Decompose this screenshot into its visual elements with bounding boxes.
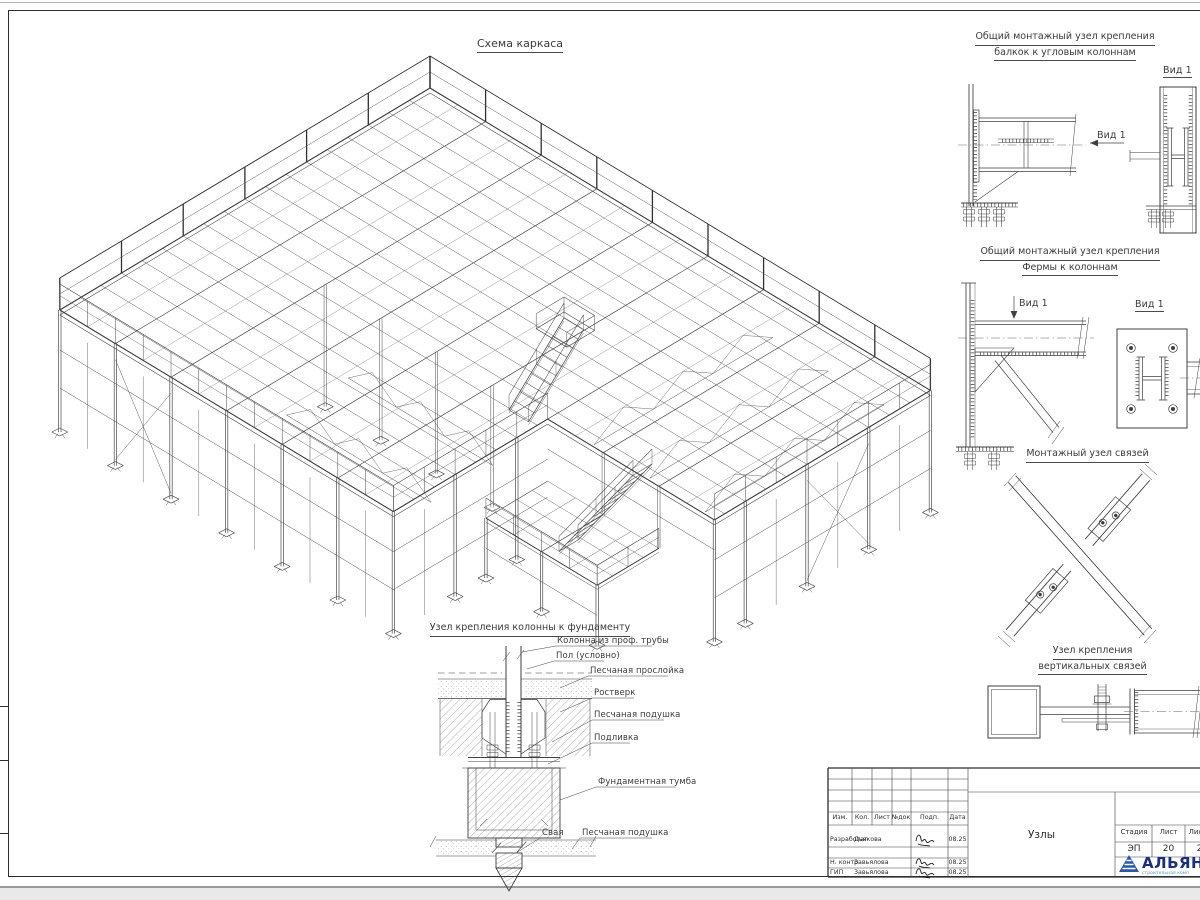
tb-sheets-value: 2 bbox=[1190, 844, 1200, 854]
detail3-title: Монтажный узел связей bbox=[975, 447, 1200, 463]
tb-role-2: ГИП bbox=[830, 869, 843, 876]
detail-vertical-braces bbox=[988, 684, 1200, 738]
detail1-view-arrow-label: Вид 1 bbox=[1097, 130, 1126, 141]
tb-doc-title: Узлы bbox=[968, 829, 1115, 841]
label-column: Колонна из проф. трубы bbox=[557, 636, 669, 646]
tb-sheet-value: 20 bbox=[1153, 844, 1184, 854]
label-sand-cushion: Песчаная подушка bbox=[594, 710, 681, 720]
detail1-title: Общий монтажный узел креплениябалкок к у… bbox=[950, 30, 1180, 61]
label-pile: Свая bbox=[542, 828, 564, 838]
label-grout: Подливка bbox=[594, 733, 639, 743]
tb-header-list: Лист bbox=[873, 814, 891, 821]
tb-date-0: 08.25 bbox=[948, 836, 967, 843]
tb-header-data: Дата bbox=[948, 814, 967, 821]
alliance-logo-subtext: строительная комп bbox=[1142, 871, 1189, 876]
tb-name-2: Завьялова bbox=[854, 869, 889, 876]
detail2-view-arrow-label: Вид 1 bbox=[1019, 298, 1048, 309]
label-pedestal: Фундаментная тумба bbox=[598, 777, 696, 787]
label-sand-cushion2: Песчаная подушка bbox=[582, 828, 669, 838]
signature bbox=[916, 835, 934, 846]
tb-date-2: 08.25 bbox=[948, 869, 967, 876]
detail2-title: Общий монтажный узел крепленияФермы к ко… bbox=[945, 245, 1195, 276]
tb-date-1: 08.25 bbox=[948, 859, 967, 866]
foundation-title: Узел крепления колонны к фундаменту bbox=[415, 621, 645, 637]
detail1-view-label: Вид 1 bbox=[1163, 65, 1192, 78]
alliance-logo-icon bbox=[1119, 855, 1139, 873]
detail-beams-corner-columns bbox=[958, 84, 1196, 233]
tb-header-kol: Кол. bbox=[853, 814, 871, 821]
tb-stage-value: ЭП bbox=[1116, 844, 1152, 854]
main-title: Схема каркаса bbox=[430, 37, 610, 53]
drawing-sheet: { "main_title": "Схема каркаса", "d1": {… bbox=[0, 0, 1200, 900]
signature bbox=[916, 859, 934, 868]
label-grillage: Ростверк bbox=[594, 688, 636, 698]
tb-stage-header: Стадия bbox=[1116, 828, 1152, 836]
tb-sheets-header: Лис bbox=[1186, 828, 1200, 836]
tb-name-1: Завьялова bbox=[854, 859, 889, 866]
tb-sheet-header: Лист bbox=[1153, 828, 1184, 836]
tb-header-izm: Изм. bbox=[829, 814, 851, 821]
detail-braces-node bbox=[998, 464, 1157, 647]
frame-scheme-isometric bbox=[52, 56, 939, 651]
tb-name-0: Дьякова bbox=[854, 836, 882, 843]
label-sand-layer: Песчаная прослойка bbox=[590, 666, 684, 676]
label-floor: Пол (условно) bbox=[556, 651, 620, 661]
detail-foundation bbox=[430, 646, 676, 891]
tb-header-podp: Подп. bbox=[912, 814, 947, 821]
detail2-view-label: Вид 1 bbox=[1135, 299, 1164, 312]
alliance-logo-text: АЛЬЯН bbox=[1142, 854, 1200, 872]
detail4-title: Узел креплениявертикальных связей bbox=[985, 644, 1200, 675]
tb-header-ndok: №док bbox=[891, 814, 911, 821]
